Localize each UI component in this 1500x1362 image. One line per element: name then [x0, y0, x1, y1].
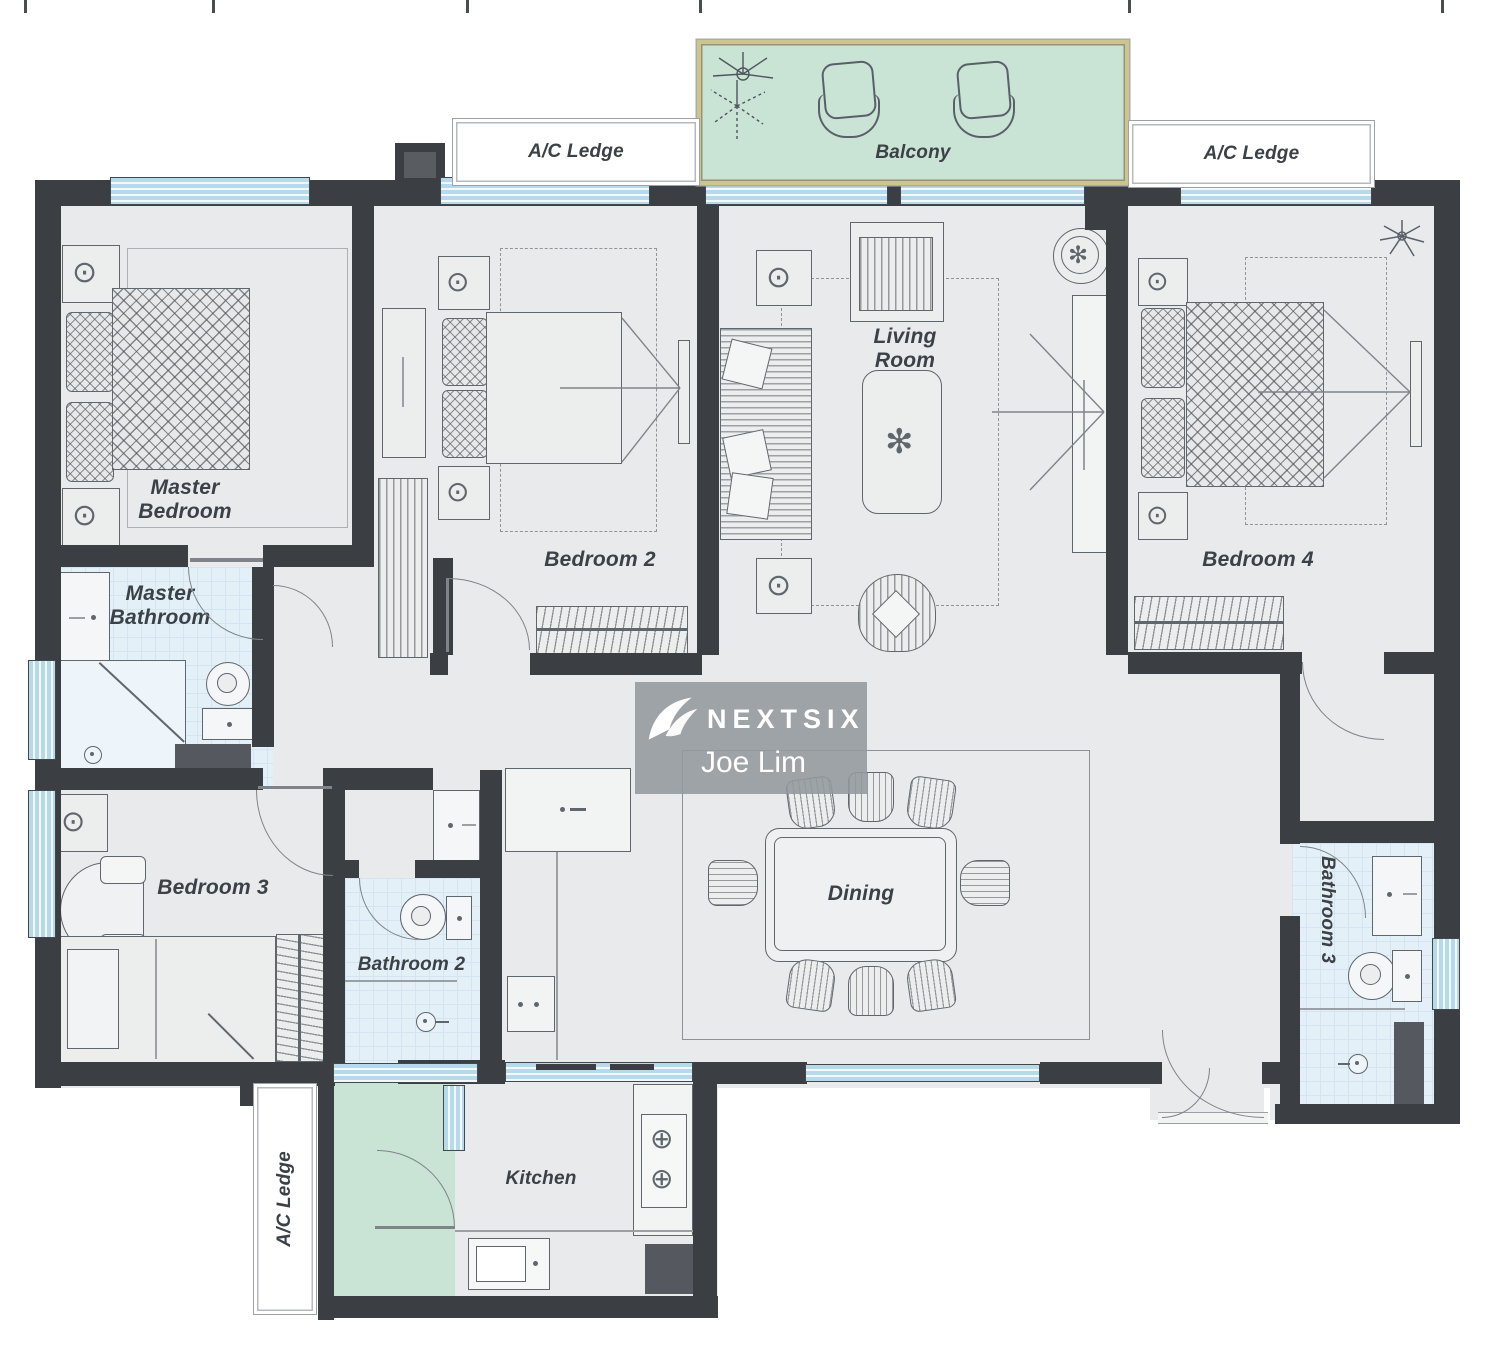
closet: [378, 478, 428, 658]
pillow: [66, 402, 114, 482]
ac-ledge-bottom: A/C Ledge: [253, 1083, 317, 1315]
burner-icon: ⊕: [650, 1125, 673, 1153]
burner-icon: ⊕: [650, 1165, 673, 1193]
drain-icon: [84, 746, 102, 764]
lamp-icon: ⊙: [61, 808, 85, 837]
shower-head-icon: [416, 1012, 436, 1032]
crop-tick: [24, 0, 27, 13]
ac-ledge-label: A/C Ledge: [1204, 143, 1300, 165]
door-leaf: [375, 1226, 455, 1229]
toilet-bowl: [1348, 952, 1396, 1000]
bath-counter: [175, 744, 251, 770]
wall: [697, 204, 719, 655]
service-shaft: [1394, 1022, 1424, 1104]
crop-tick: [1441, 0, 1444, 13]
wardrobe: [276, 934, 324, 1062]
toilet-tank: [1392, 950, 1422, 1002]
watermark-brand: NEXTSIX: [707, 704, 865, 735]
balcony-label: Balcony: [701, 142, 1125, 164]
wall: [1280, 916, 1300, 1106]
toilet-tank: [446, 896, 472, 940]
nightstand: ⊙: [1138, 258, 1188, 306]
door-leaf: [190, 558, 263, 562]
ac-ledge-left: A/C Ledge: [452, 118, 700, 186]
wall: [345, 860, 359, 878]
decor-ornament: ✻: [1053, 228, 1109, 284]
wall: [1040, 1062, 1162, 1084]
lamp-icon: ⊙: [72, 258, 97, 288]
wall: [35, 180, 61, 1088]
crop-tick: [699, 0, 702, 13]
window: [28, 790, 56, 938]
wall: [263, 545, 374, 567]
window: [443, 1085, 465, 1151]
wardrobe: [1134, 596, 1284, 650]
dining-chair: [785, 957, 838, 1013]
side-table: ⊙: [756, 558, 812, 614]
single-bed: [58, 936, 276, 1064]
lamp-icon: ⊙: [446, 478, 469, 506]
bed: [486, 312, 622, 464]
dresser: [678, 340, 690, 444]
pillow: [442, 390, 488, 458]
armchair: [850, 222, 944, 322]
wall: [430, 653, 448, 675]
nightstand: ⊙: [1138, 492, 1188, 540]
chair-cushion: [872, 590, 920, 638]
pillow: [1141, 398, 1185, 478]
lamp-icon: ⊙: [1146, 268, 1169, 295]
wall: [35, 545, 188, 567]
hall-cabinet: [505, 768, 631, 852]
sofa-cushion: [726, 472, 773, 519]
sofa-cushion: [722, 339, 773, 390]
sofa-cushion: [722, 429, 772, 479]
window: [1432, 938, 1460, 1010]
window-sliding-door: [505, 1062, 693, 1082]
watermark-agent: Joe Lim: [701, 746, 806, 780]
wall: [318, 1296, 718, 1318]
wall: [1275, 1104, 1460, 1124]
balcony-chair: [816, 62, 882, 142]
ac-ledge-label: A/C Ledge: [274, 1151, 296, 1247]
plant-icon: [1374, 218, 1430, 282]
master-bed: [112, 288, 250, 470]
wardrobe: [536, 606, 688, 654]
lamp-icon: ⊙: [766, 571, 791, 601]
round-chair: [858, 574, 936, 652]
dining-chair: [848, 966, 894, 1016]
shower-head-icon: [1348, 1054, 1368, 1074]
wall: [1106, 204, 1128, 655]
lamp-icon: ⊙: [446, 268, 469, 296]
window: [333, 1063, 478, 1083]
vanity-sink: [433, 790, 480, 868]
window: [28, 660, 56, 760]
dining-chair: [708, 860, 758, 906]
lamp-icon: ⊙: [72, 501, 97, 531]
wall: [1384, 652, 1436, 674]
wall: [1280, 674, 1300, 844]
bed: [1186, 302, 1324, 487]
door-leaf: [258, 786, 332, 789]
crop-tick: [466, 0, 469, 13]
ac-ledge-right: A/C Ledge: [1128, 120, 1375, 188]
room-label-bedroom3: Bedroom 3: [148, 876, 278, 900]
room-label-bathroom2: Bathroom 2: [343, 954, 480, 976]
coffee-table: ✻: [862, 370, 942, 514]
vanity-sink: [1372, 856, 1422, 936]
dining-chair: [960, 860, 1010, 906]
dresser: [1410, 341, 1422, 447]
nightstand: ⊙: [438, 256, 490, 310]
lamp-icon: ⊙: [766, 263, 791, 293]
wall: [1128, 652, 1302, 674]
nightstand: ⊙: [438, 466, 490, 520]
armchair-seat: [859, 237, 933, 311]
room-label-kitchen: Kitchen: [495, 1168, 587, 1190]
wall: [693, 1062, 807, 1084]
lamp-icon: ⊙: [1146, 502, 1169, 529]
mattress-pillow: [67, 949, 119, 1049]
pillow: [66, 312, 114, 392]
pillow: [1141, 308, 1185, 388]
room-label-bedroom2: Bedroom 2: [520, 548, 680, 572]
window: [110, 177, 310, 205]
tall-cabinet: [382, 308, 426, 458]
balcony-chair: [951, 62, 1017, 142]
room-label-dining: Dining: [801, 882, 921, 906]
floor-plan: ⊙ ⊙ Master Bedroom ⊙ ⊙ Bedroom 2 ⊙ ⊙ ✻ ✻…: [0, 0, 1500, 1362]
fridge: [645, 1244, 693, 1294]
crop-tick: [1128, 0, 1131, 13]
balcony: Balcony: [697, 40, 1129, 185]
wall: [395, 143, 445, 185]
armrest: [100, 856, 146, 884]
flower-icon: ✻: [885, 425, 914, 459]
room-label-master-bedroom: Master Bedroom: [112, 476, 258, 524]
wall: [1280, 821, 1436, 843]
wall: [530, 653, 702, 675]
pillow: [442, 318, 488, 386]
wall: [352, 204, 374, 562]
wall: [693, 1084, 717, 1318]
room-label-living-room: Living Room: [845, 325, 965, 373]
crop-tick: [212, 0, 215, 13]
side-table: ⊙: [756, 250, 812, 306]
watermark: NEXTSIX Joe Lim: [635, 682, 867, 794]
wall: [1262, 1062, 1282, 1084]
wall: [415, 860, 482, 878]
stove: ⊕ ⊕: [641, 1114, 687, 1208]
wall: [35, 768, 263, 790]
flower-icon: ✻: [1068, 244, 1088, 268]
window: [805, 1064, 1040, 1082]
toilet-tank: [202, 708, 256, 740]
room-label-bedroom4: Bedroom 4: [1178, 548, 1338, 572]
wall: [323, 768, 433, 790]
ac-ledge-label: A/C Ledge: [528, 141, 624, 163]
wall: [480, 770, 502, 1064]
toilet-bowl: [206, 662, 250, 706]
hall-cabinet: [507, 976, 555, 1032]
kitchen-sink: [468, 1238, 550, 1290]
nextsix-logo-icon: [645, 692, 701, 750]
sofa: [720, 328, 812, 540]
wall: [318, 1080, 334, 1320]
